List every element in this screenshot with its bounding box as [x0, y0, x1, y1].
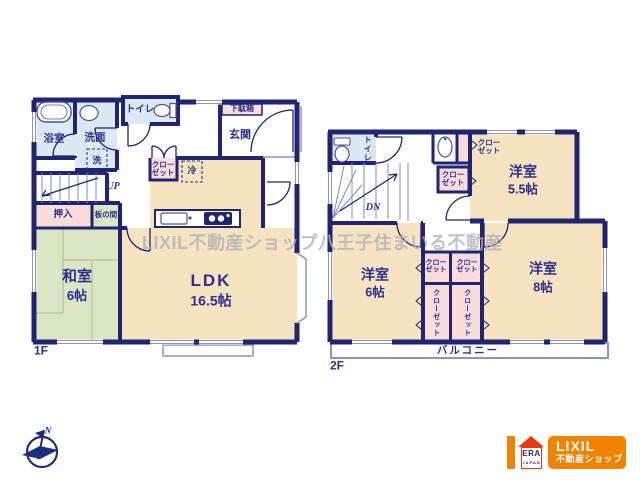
label-balcony: バルコニー	[437, 345, 499, 356]
logo-brand-text: LIXIL	[556, 439, 626, 454]
closet-2f-a-line2: ゼット	[478, 147, 501, 155]
lixil-logo: ERA JAPAN LIXIL 不動産ショップ	[507, 436, 626, 469]
label-shoe-cabinet: 下駄箱	[230, 105, 254, 113]
label-tatami-room: 和室	[62, 269, 92, 285]
compass-icon	[22, 430, 58, 467]
label-room-c: 洋室	[529, 262, 557, 277]
label-closet-1f: クロー ゼット	[152, 161, 175, 177]
label-toilet-1f: トイレ	[126, 105, 155, 115]
label-closet-c2: クロー ゼット	[457, 260, 478, 275]
label-oshiire: 押入	[53, 210, 72, 220]
label-room-c-size: 8帖	[533, 281, 552, 294]
era-country-label: JAPAN	[518, 460, 545, 465]
era-roof-shape	[518, 436, 544, 447]
label-room-b: 洋室	[361, 268, 389, 283]
label-room-b-size: 6帖	[365, 286, 384, 299]
label-closet-c4: クローゼット	[463, 289, 470, 337]
label-stairs-up: UP	[106, 182, 119, 193]
logo-orange-bar	[507, 436, 515, 469]
porch-step	[163, 345, 253, 356]
stairs-1f	[42, 173, 98, 203]
label-entrance: 玄関	[229, 130, 251, 142]
label-closet-2f-b: クロー ゼット	[442, 171, 465, 187]
compass-north-label: N	[45, 426, 52, 435]
label-room-a-size: 5.5帖	[508, 183, 538, 196]
watermark: LIXIL不動産ショップ八王子住まいる不動産	[142, 229, 503, 255]
label-bath: 浴室	[44, 133, 65, 144]
era-house-icon: ERA JAPAN	[518, 436, 545, 469]
logo-brand-box: LIXIL 不動産ショップ	[548, 436, 626, 469]
label-itanoma: 板の間	[95, 211, 118, 219]
logo-brand-subtext: 不動産ショップ	[556, 454, 626, 464]
closet-c1-line2: ゼット	[426, 267, 447, 274]
era-label: ERA	[518, 449, 545, 458]
label-fridge: 冷	[187, 166, 196, 175]
floorplan-page: 浴室 洗面 洗 トイレ 下駄箱 玄関 クロー ゼット 冷 UP 押入 板の間 和…	[0, 0, 640, 480]
label-toilet-2f: トイレ	[363, 136, 371, 163]
closet-1f-line2: ゼット	[152, 169, 175, 177]
closet-c2-line2: ゼット	[457, 267, 478, 274]
label-washroom: 洗面	[85, 132, 106, 143]
label-tatami-size: 6帖	[67, 289, 87, 303]
label-floor-2f: 2F	[330, 360, 344, 373]
label-closet-2f-a: クロー ゼット	[478, 139, 501, 155]
label-ldk: LDK	[191, 272, 232, 290]
label-closet-c1: クロー ゼット	[426, 260, 447, 275]
label-closet-c3: クローゼット	[432, 289, 439, 337]
label-stairs-dn: DN	[366, 203, 380, 214]
label-room-a: 洋室	[509, 165, 537, 180]
closet-2f-b-line2: ゼット	[442, 179, 465, 187]
label-floor-1f: 1F	[34, 345, 48, 358]
label-laundry: 洗	[92, 156, 101, 165]
label-ldk-size: 16.5帖	[190, 294, 231, 309]
